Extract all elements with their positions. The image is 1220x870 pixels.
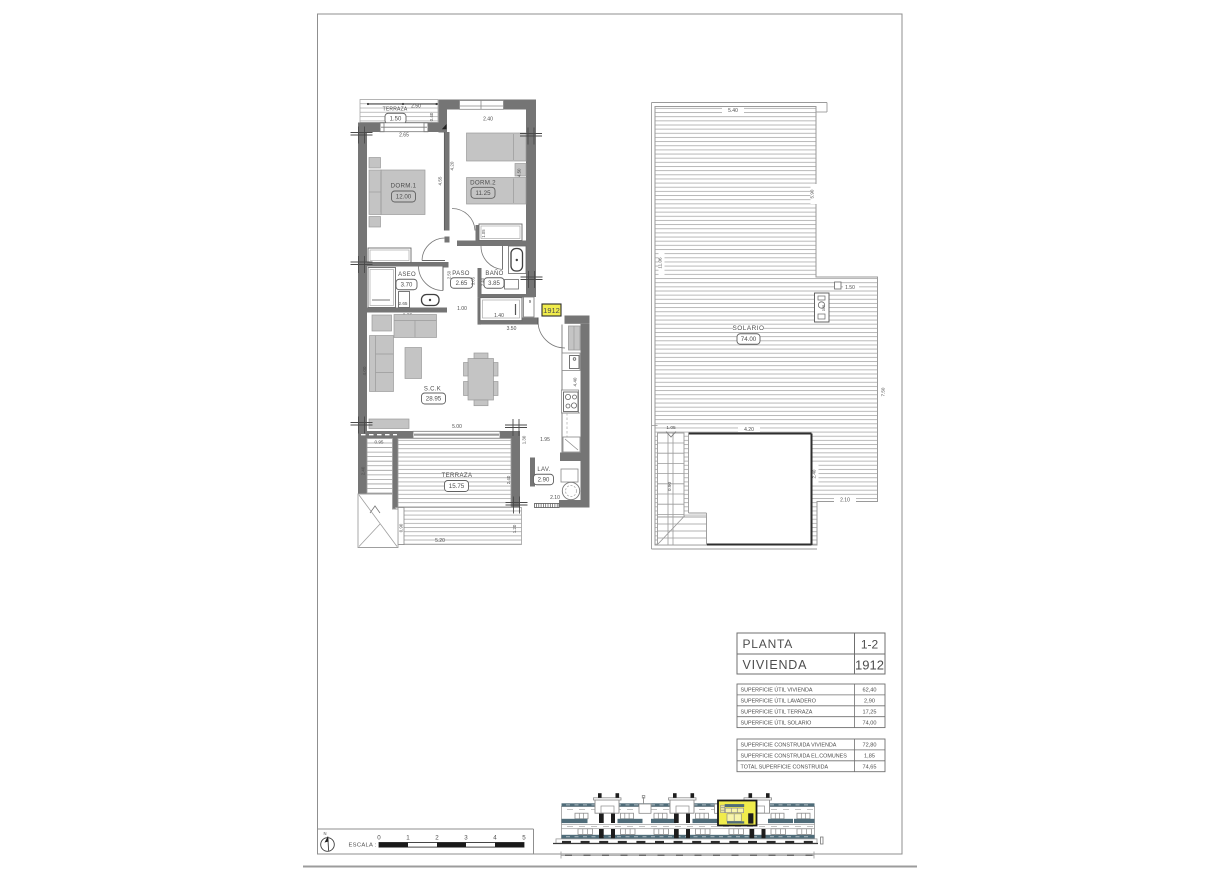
svg-text:SUPERFICIE CONSTRUIDA VIVIENDA: SUPERFICIE CONSTRUIDA VIVIENDA xyxy=(741,743,837,749)
svg-text:15.75: 15.75 xyxy=(449,483,465,490)
svg-text:4.00: 4.00 xyxy=(362,366,367,375)
svg-text:2.40: 2.40 xyxy=(506,475,511,484)
svg-text:2.65: 2.65 xyxy=(399,133,409,139)
svg-text:4: 4 xyxy=(493,835,497,842)
svg-text:72,80: 72,80 xyxy=(863,743,877,749)
svg-text:SUPERFICIE ÚTIL SOLARIO: SUPERFICIE ÚTIL SOLARIO xyxy=(741,719,812,726)
svg-text:2.40: 2.40 xyxy=(361,466,366,475)
svg-text:74,65: 74,65 xyxy=(863,764,877,770)
svg-text:BAÑO: BAÑO xyxy=(485,270,503,277)
svg-text:TERRAZA: TERRAZA xyxy=(383,107,408,113)
svg-text:1.40: 1.40 xyxy=(494,313,504,319)
svg-text:3.70: 3.70 xyxy=(401,283,413,289)
svg-text:1.95: 1.95 xyxy=(540,437,550,443)
svg-text:1.20: 1.20 xyxy=(512,524,517,533)
svg-text:2.40: 2.40 xyxy=(812,469,817,478)
svg-text:2.65: 2.65 xyxy=(456,281,468,287)
svg-text:1.50: 1.50 xyxy=(390,117,402,123)
svg-text:5.00: 5.00 xyxy=(452,424,462,430)
svg-text:SUPERFICIE ÚTIL LAVADERO: SUPERFICIE ÚTIL LAVADERO xyxy=(741,698,816,705)
svg-text:0: 0 xyxy=(377,835,381,842)
svg-text:1.05: 1.05 xyxy=(666,425,676,431)
svg-text:2.40: 2.40 xyxy=(483,117,493,123)
svg-text:1912: 1912 xyxy=(543,306,560,315)
svg-text:12.00: 12.00 xyxy=(396,194,412,201)
svg-text:PASO: PASO xyxy=(452,271,469,277)
svg-text:4.20: 4.20 xyxy=(450,161,455,170)
svg-text:3.50: 3.50 xyxy=(507,326,517,332)
svg-text:1-2: 1-2 xyxy=(861,638,879,652)
svg-text:3.05: 3.05 xyxy=(471,276,476,285)
svg-text:1,85: 1,85 xyxy=(864,754,875,760)
svg-text:0.40: 0.40 xyxy=(429,112,434,121)
svg-text:2.50: 2.50 xyxy=(411,104,421,110)
svg-text:5.20: 5.20 xyxy=(435,538,445,544)
svg-text:1.05: 1.05 xyxy=(481,229,486,238)
svg-text:2: 2 xyxy=(435,835,439,842)
svg-text:PLANTA: PLANTA xyxy=(743,637,794,651)
svg-text:S.C.K: S.C.K xyxy=(424,387,441,393)
svg-text:5: 5 xyxy=(522,835,526,842)
svg-text:SUPERFICIE CONSTRUIDA EL.COMUN: SUPERFICIE CONSTRUIDA EL.COMUNES xyxy=(741,754,848,760)
svg-text:0.90: 0.90 xyxy=(667,482,673,492)
svg-text:3.85: 3.85 xyxy=(488,281,500,287)
svg-text:TOTAL SUPERFICIE CONSTRUIDA: TOTAL SUPERFICIE CONSTRUIDA xyxy=(741,764,829,770)
svg-text:4.55: 4.55 xyxy=(438,176,443,185)
svg-text:5.90: 5.90 xyxy=(810,189,815,198)
svg-text:1: 1 xyxy=(406,835,410,842)
svg-text:1912: 1912 xyxy=(855,658,884,673)
svg-text:7.50: 7.50 xyxy=(881,387,886,396)
svg-text:2.10: 2.10 xyxy=(840,498,850,504)
svg-text:5.40: 5.40 xyxy=(728,108,738,114)
svg-text:4.40: 4.40 xyxy=(573,377,578,386)
svg-text:1.30: 1.30 xyxy=(522,435,527,444)
svg-text:17,25: 17,25 xyxy=(863,709,877,715)
svg-text:11.25: 11.25 xyxy=(475,190,491,197)
svg-text:ESCALA :: ESCALA : xyxy=(349,843,377,849)
svg-text:LAV.: LAV. xyxy=(537,467,550,473)
svg-text:2.50: 2.50 xyxy=(447,270,452,279)
svg-text:DORM.1: DORM.1 xyxy=(391,183,417,190)
svg-text:N: N xyxy=(323,831,326,836)
svg-text:SUPERFICIE ÚTIL TERRAZA: SUPERFICIE ÚTIL TERRAZA xyxy=(741,708,813,715)
svg-text:4.20: 4.20 xyxy=(744,427,754,433)
svg-text:2.10: 2.10 xyxy=(550,495,560,501)
svg-text:28.95: 28.95 xyxy=(426,396,442,403)
svg-text:2.65: 2.65 xyxy=(399,301,408,306)
svg-text:2.40: 2.40 xyxy=(480,277,485,286)
svg-text:2.90: 2.90 xyxy=(538,478,550,484)
svg-text:11.06: 11.06 xyxy=(658,257,663,269)
svg-text:0.90: 0.90 xyxy=(399,523,404,532)
svg-text:2,90: 2,90 xyxy=(864,699,875,705)
svg-text:0.95: 0.95 xyxy=(375,440,384,445)
svg-text:VIVIENDA: VIVIENDA xyxy=(743,658,808,672)
svg-text:4.50: 4.50 xyxy=(516,168,521,177)
svg-text:74,00: 74,00 xyxy=(863,720,877,726)
svg-text:ASEO: ASEO xyxy=(398,272,416,278)
svg-text:SOLARIO: SOLARIO xyxy=(733,325,765,332)
svg-text:62,40: 62,40 xyxy=(863,688,877,694)
svg-text:DEP: DEP xyxy=(822,305,826,312)
svg-text:DORM.2: DORM.2 xyxy=(470,180,496,187)
svg-text:74.00: 74.00 xyxy=(741,336,757,343)
svg-text:1.50: 1.50 xyxy=(845,285,855,291)
svg-text:TERRAZA: TERRAZA xyxy=(442,473,473,479)
svg-text:SUPERFICIE ÚTIL VIVIENDA: SUPERFICIE ÚTIL VIVIENDA xyxy=(741,687,813,694)
svg-text:1.00: 1.00 xyxy=(457,306,467,312)
svg-text:3: 3 xyxy=(464,835,468,842)
